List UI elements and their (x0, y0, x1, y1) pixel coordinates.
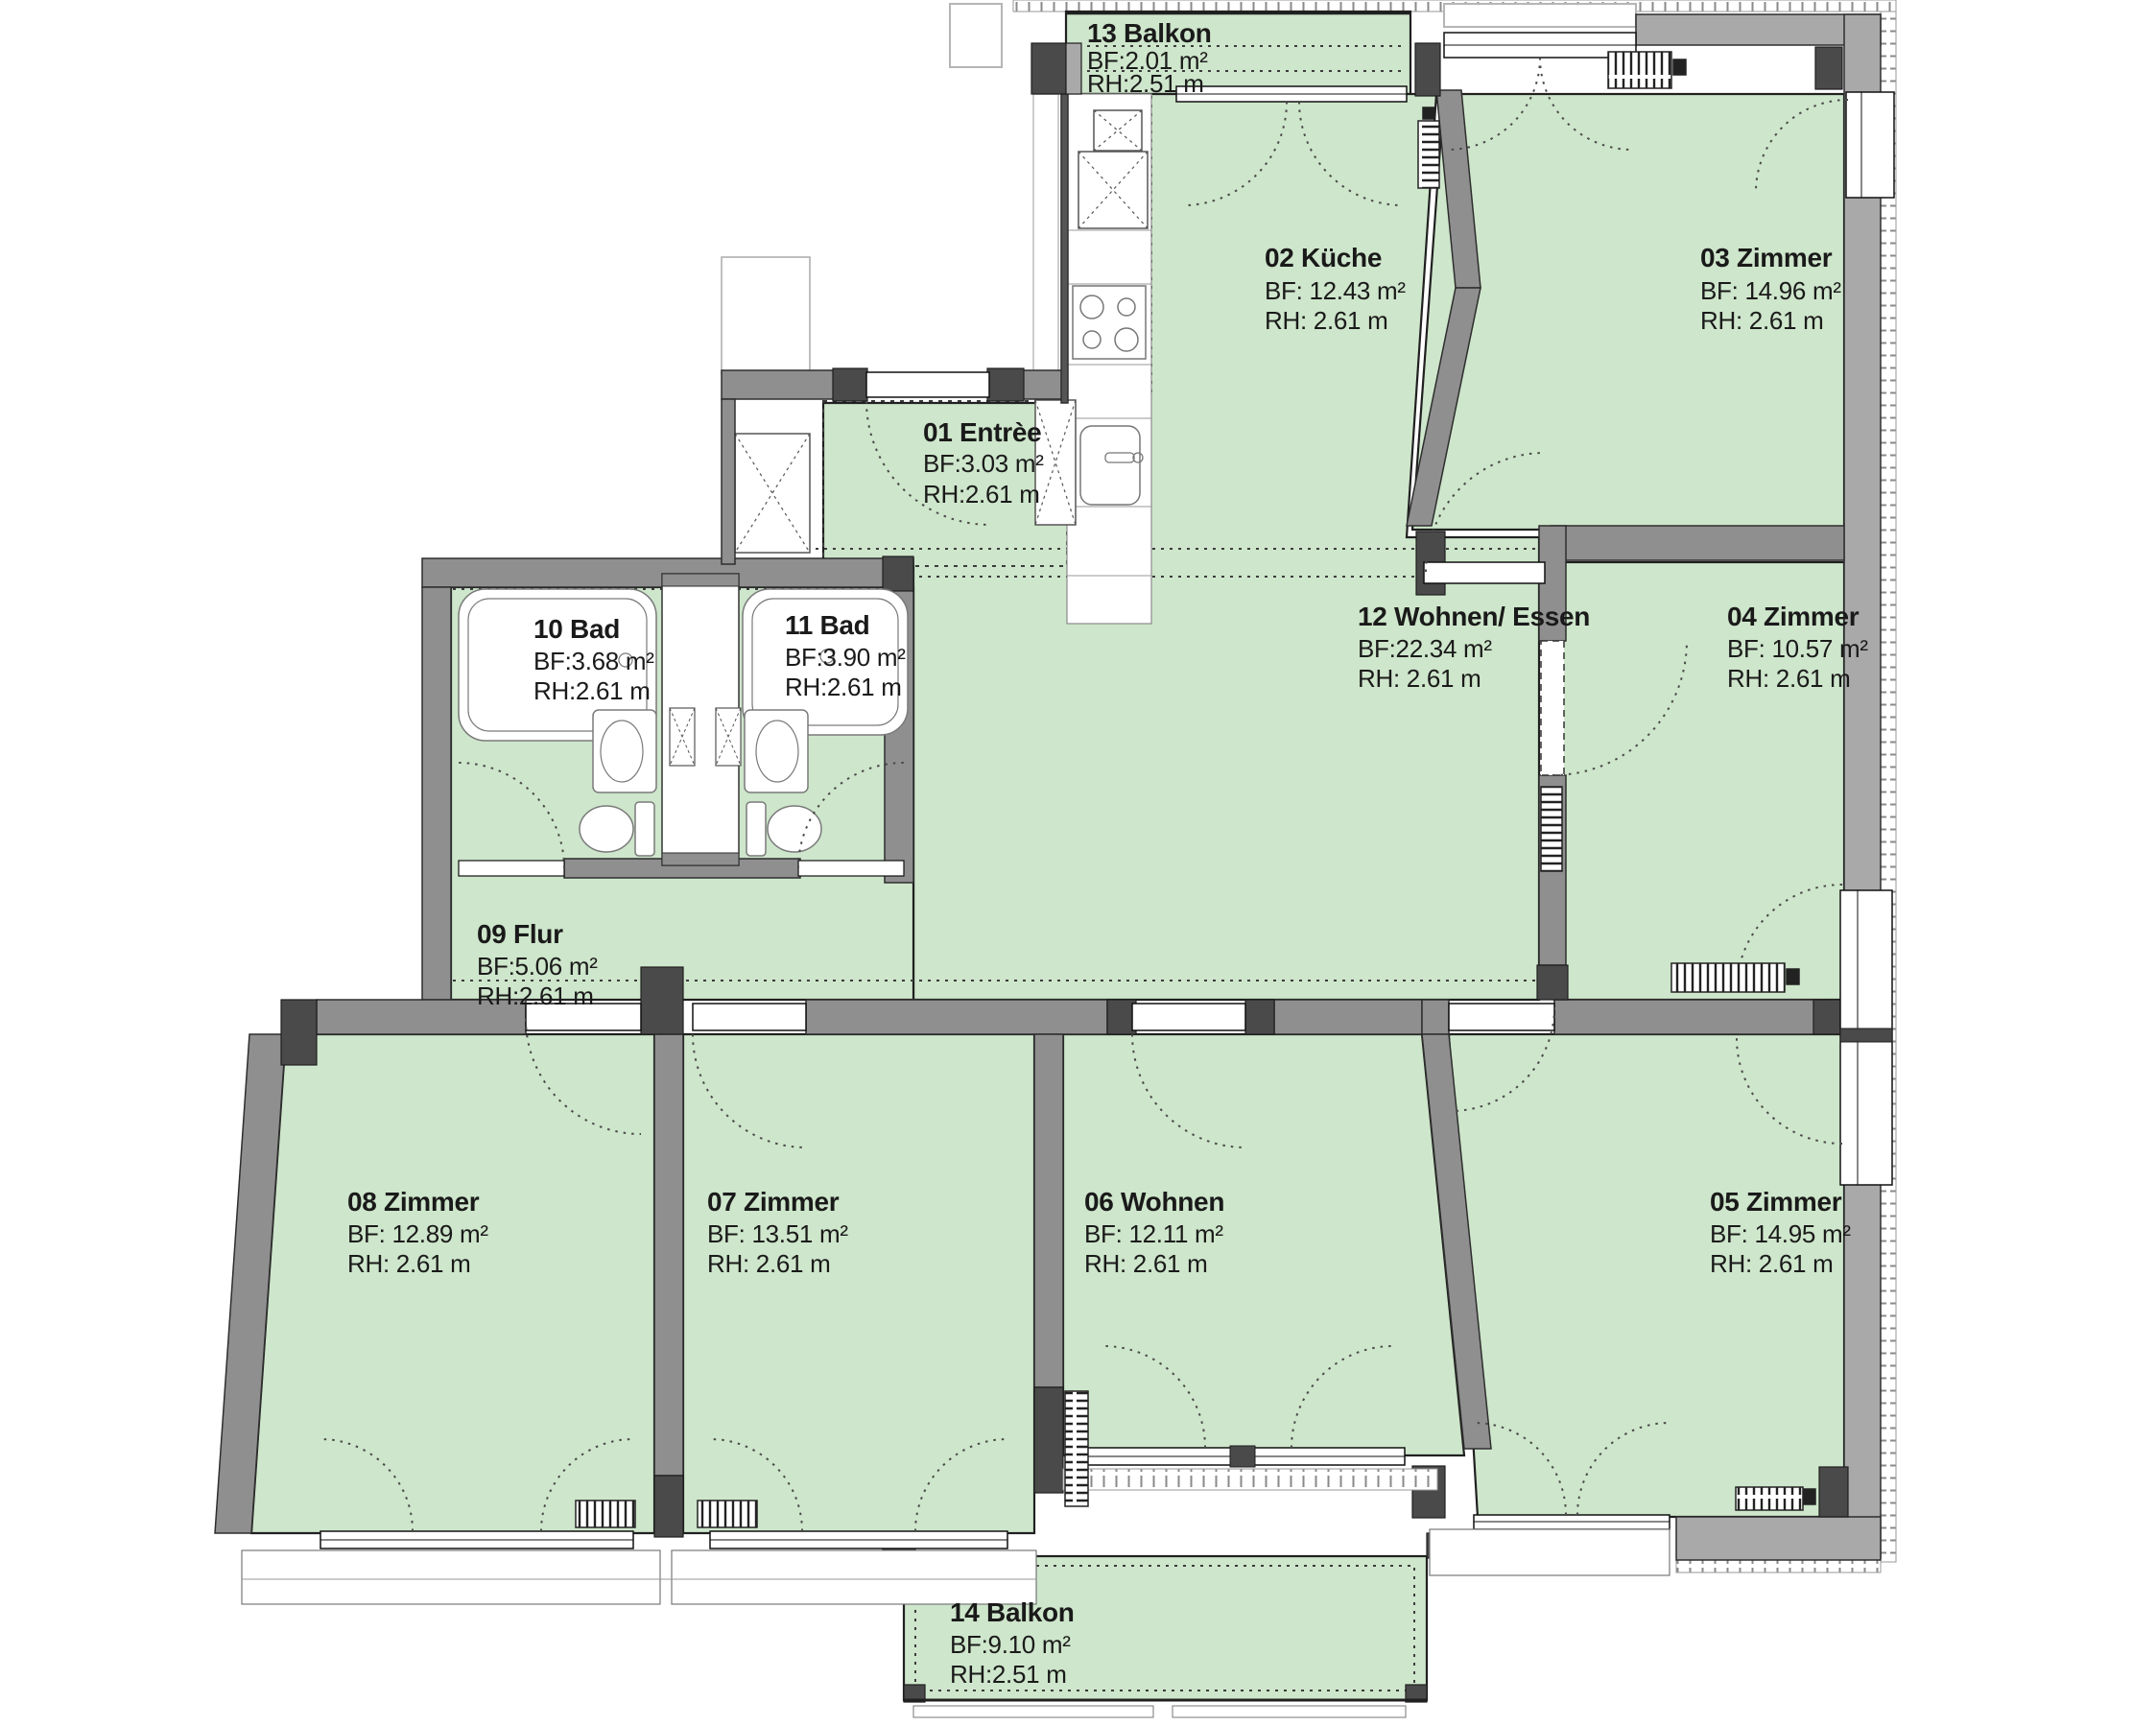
balkon14-top-ticks (1063, 1469, 1437, 1490)
post (654, 1476, 683, 1537)
floor-plan: 13 Balkon BF:2.01 m² RH:2.51 m 02 Küche … (0, 0, 2156, 1726)
exterior-wall-bottom-right (1676, 1517, 1881, 1560)
radiator-valve (1673, 59, 1686, 75)
svg-text:BF:3.03 m²: BF:3.03 m² (923, 449, 1044, 478)
post (833, 368, 867, 401)
wall-band-d (1422, 1000, 1449, 1034)
post (1031, 43, 1066, 94)
wall-kitchen-left-line (1061, 94, 1068, 403)
wall-band-b (806, 1000, 1107, 1034)
svg-text:RH: 2.61 m: RH: 2.61 m (347, 1249, 471, 1278)
room-label-04-zimmer: 04 Zimmer BF: 10.57 m² RH: 2.61 m (1727, 602, 1868, 693)
wall-07-06 (1034, 1034, 1063, 1387)
svg-text:RH:2.61 m: RH:2.61 m (923, 480, 1040, 508)
sill-below-07 (672, 1550, 1036, 1604)
post (1537, 965, 1568, 1000)
door-threshold-bad11 (798, 861, 904, 876)
door-threshold-07 (693, 1004, 806, 1030)
right-facade-ticks (1881, 12, 1896, 1562)
room-area-07-zimmer (683, 1034, 1034, 1533)
post (1815, 47, 1842, 89)
svg-text:BF:3.68 m²: BF:3.68 m² (533, 647, 654, 675)
radiator-valve (1423, 107, 1434, 119)
radiator-valve (1804, 1489, 1815, 1504)
post (1415, 43, 1440, 96)
room-label-13-balkon: 13 Balkon BF:2.01 m² RH:2.51 m (1087, 18, 1212, 98)
floor-plan-page: 13 Balkon BF:2.01 m² RH:2.51 m 02 Küche … (0, 0, 2156, 1726)
door-threshold-bad10 (459, 861, 564, 876)
post (987, 368, 1024, 401)
wall-band-c (1274, 1000, 1422, 1034)
stairwell-hint (722, 257, 810, 374)
svg-text:RH:2.51 m: RH:2.51 m (1087, 69, 1204, 98)
door-threshold-05 (1449, 1004, 1554, 1030)
svg-text:RH: 2.61 m: RH: 2.61 m (1265, 306, 1388, 335)
svg-text:RH: 2.61 m: RH: 2.61 m (707, 1249, 831, 1278)
kitchen-sink (1080, 426, 1143, 505)
radiator (1065, 1391, 1088, 1506)
post (1819, 1467, 1848, 1517)
balkon14-sill (1173, 1706, 1406, 1717)
entry-door-threshold (866, 372, 989, 397)
svg-text:13 Balkon: 13 Balkon (1087, 18, 1212, 48)
room-label-06-wohnen: 06 Wohnen BF: 12.11 m² RH: 2.61 m (1084, 1187, 1224, 1278)
post (281, 1000, 317, 1065)
room-label-14-balkon: 14 Balkon BF:9.10 m² RH:2.51 m (950, 1597, 1075, 1689)
svg-text:BF:3.90 m²: BF:3.90 m² (785, 643, 906, 672)
facade-recess (1033, 94, 1058, 374)
svg-text:RH: 2.61 m: RH: 2.61 m (1710, 1249, 1834, 1278)
svg-text:BF: 14.95 m²: BF: 14.95 m² (1710, 1219, 1851, 1248)
installation-shaft (662, 574, 741, 865)
toilet (580, 802, 654, 856)
svg-text:RH: 2.61 m: RH: 2.61 m (1084, 1249, 1208, 1278)
svg-text:BF:9.10 m²: BF:9.10 m² (950, 1630, 1071, 1659)
svg-text:11 Bad: 11 Bad (785, 610, 869, 640)
svg-text:09 Flur: 09 Flur (477, 919, 563, 949)
radiator (698, 1501, 757, 1527)
room-label-01-entree: 01 Entrèe BF:3.03 m² RH:2.61 m (923, 417, 1044, 508)
kitchen-fixtures (1067, 94, 1151, 624)
svg-text:RH: 2.61 m: RH: 2.61 m (1727, 664, 1851, 693)
post (1245, 1000, 1274, 1034)
svg-text:08 Zimmer: 08 Zimmer (347, 1187, 480, 1217)
door-threshold-06 (1132, 1004, 1245, 1030)
toilet (746, 802, 821, 856)
svg-text:BF: 12.43 m²: BF: 12.43 m² (1265, 276, 1406, 305)
room-label-05-zimmer: 05 Zimmer BF: 14.95 m² RH: 2.61 m (1710, 1187, 1851, 1278)
svg-text:01 Entrèe: 01 Entrèe (923, 417, 1041, 447)
sill-below-08 (242, 1550, 660, 1604)
post (1034, 1387, 1063, 1493)
wall-bad-left (422, 587, 451, 1000)
room-label-03-zimmer: 03 Zimmer BF: 14.96 m² RH: 2.61 m (1700, 243, 1841, 335)
room-label-07-zimmer: 07 Zimmer BF: 13.51 m² RH: 2.61 m (707, 1187, 848, 1278)
svg-text:02 Küche: 02 Küche (1265, 243, 1382, 272)
radiator (1418, 121, 1439, 188)
svg-text:10 Bad: 10 Bad (533, 614, 620, 644)
window-bay-zimmer03 (1846, 92, 1894, 198)
svg-text:RH:2.61 m: RH:2.61 m (533, 676, 651, 705)
radiator (576, 1501, 635, 1527)
radiator (1736, 1487, 1803, 1510)
svg-text:05 Zimmer: 05 Zimmer (1710, 1187, 1842, 1217)
svg-text:04 Zimmer: 04 Zimmer (1727, 602, 1860, 631)
door-threshold-03 (1424, 562, 1545, 583)
svg-text:07 Zimmer: 07 Zimmer (707, 1187, 840, 1217)
svg-text:BF: 13.51 m²: BF: 13.51 m² (707, 1219, 848, 1248)
balkon14-sill (913, 1706, 1153, 1717)
bay-transom-post (1840, 1029, 1892, 1042)
wall-entree-left (722, 399, 735, 564)
wall-03-04 (1551, 526, 1844, 560)
wardrobe (735, 434, 810, 553)
post (641, 967, 683, 1034)
radiator (1541, 787, 1562, 871)
radiator (1608, 52, 1671, 88)
bottom-right-facade-ticks (1676, 1560, 1881, 1572)
radiator-valve (1787, 969, 1799, 984)
svg-text:BF: 12.89 m²: BF: 12.89 m² (347, 1219, 488, 1248)
sill-below-05 (1430, 1529, 1670, 1575)
neighbor-slab (950, 4, 1002, 67)
svg-text:BF: 14.96 m²: BF: 14.96 m² (1700, 276, 1841, 305)
bathroom-sink (593, 710, 656, 792)
svg-text:14 Balkon: 14 Balkon (950, 1597, 1075, 1627)
neighbor-slab (1444, 4, 1636, 27)
svg-text:BF: 12.11 m²: BF: 12.11 m² (1084, 1219, 1223, 1248)
door-leaf-04 (1541, 641, 1564, 775)
wall-08-07 (654, 1034, 683, 1476)
svg-text:RH:2.61 m: RH:2.61 m (477, 981, 594, 1010)
exterior-wall-right (1844, 14, 1881, 1558)
bathroom-sink (745, 710, 808, 792)
svg-text:RH:2.51 m: RH:2.51 m (950, 1660, 1067, 1689)
svg-text:BF:5.06 m²: BF:5.06 m² (477, 952, 598, 981)
svg-text:06 Wohnen: 06 Wohnen (1084, 1187, 1224, 1217)
room-label-08-zimmer: 08 Zimmer BF: 12.89 m² RH: 2.61 m (347, 1187, 488, 1278)
post (1230, 1446, 1255, 1467)
svg-text:03 Zimmer: 03 Zimmer (1700, 243, 1833, 272)
room-area-08-zimmer (251, 1034, 654, 1533)
post (1066, 43, 1081, 94)
svg-text:12 Wohnen/ Essen: 12 Wohnen/ Essen (1358, 602, 1590, 631)
radiator (1671, 963, 1785, 992)
svg-text:RH: 2.61 m: RH: 2.61 m (1700, 306, 1824, 335)
svg-text:RH:2.61 m: RH:2.61 m (785, 673, 902, 701)
wall-04-05 (1554, 1000, 1827, 1034)
post (883, 556, 913, 591)
svg-text:BF: 10.57 m²: BF: 10.57 m² (1727, 634, 1868, 663)
cooktop (1073, 286, 1146, 359)
svg-text:BF:22.34 m²: BF:22.34 m² (1358, 634, 1492, 663)
svg-text:RH: 2.61 m: RH: 2.61 m (1358, 664, 1481, 693)
